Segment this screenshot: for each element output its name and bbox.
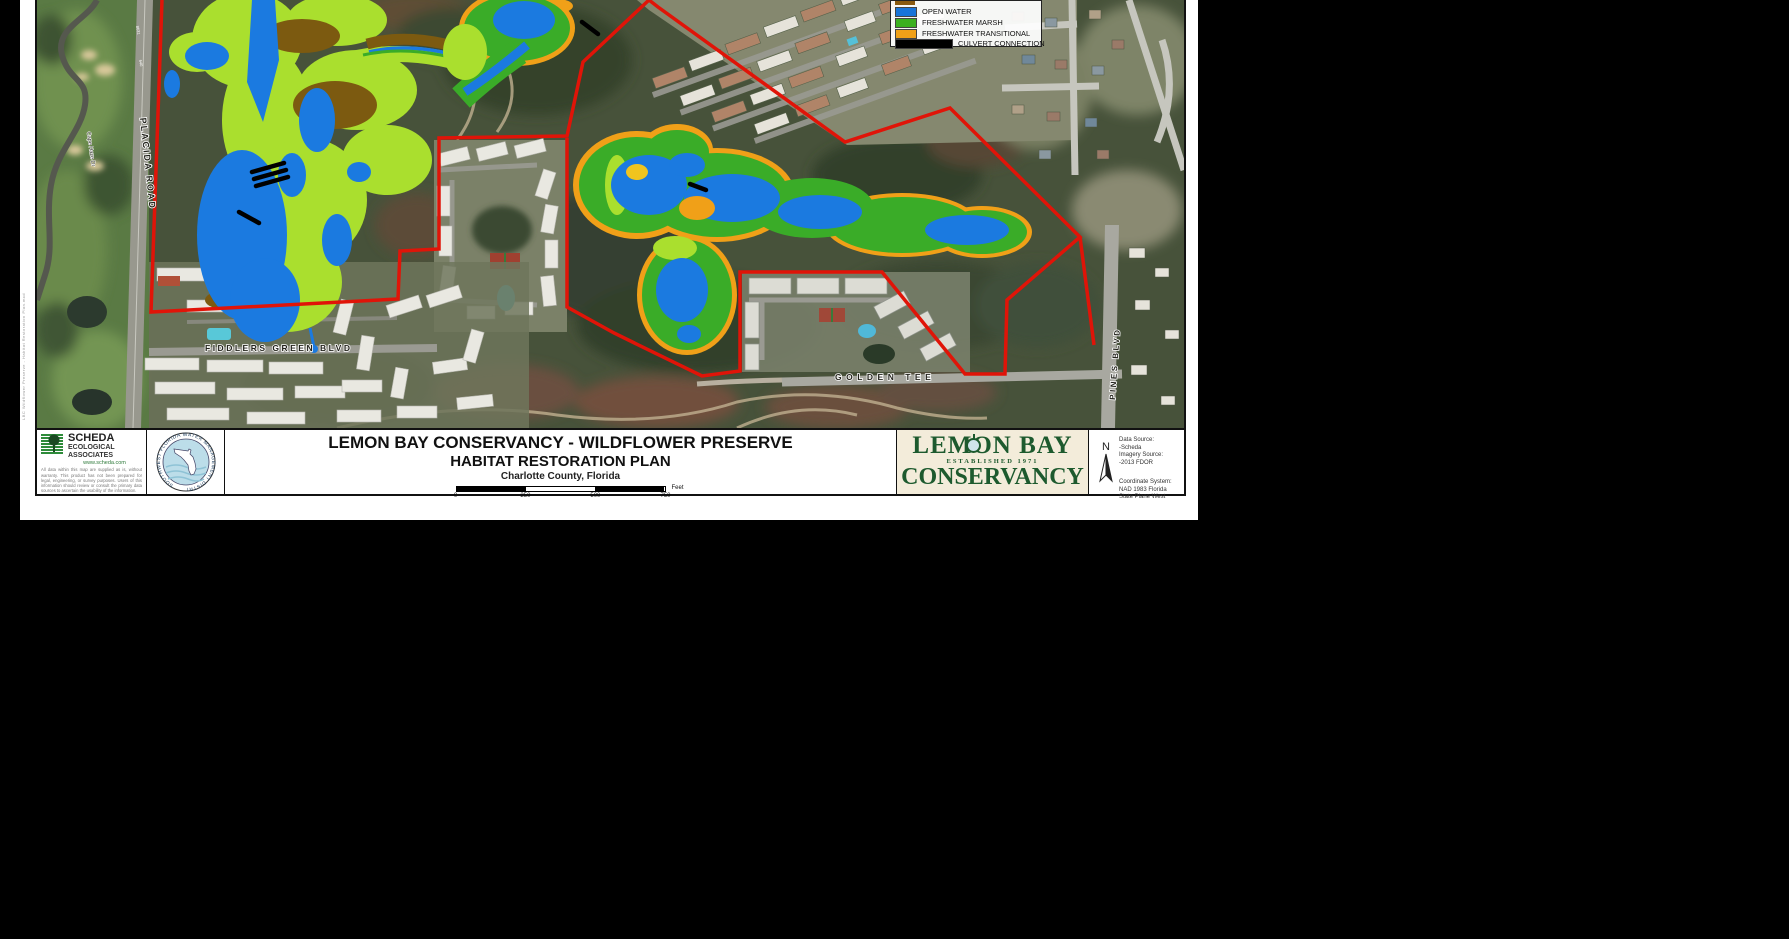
scale-unit: Feet: [671, 485, 683, 491]
lemon-bay-conservancy-logo: LEMON BAY ESTABLISHED 1971 CONSERVANCY: [897, 430, 1089, 494]
freshwater-transitional-swatch: [895, 29, 917, 39]
map-document-note: LBC Wildflower Preserve - Habitat Restor…: [21, 50, 33, 420]
map-image: PLACIDA ROAD FIDDLERS GREEN BLVD GOLDEN …: [37, 0, 1184, 428]
title-block: SCHEDA ECOLOGICAL ASSOCIATES www.scheda.…: [37, 428, 1184, 494]
lbc-logo-line3: CONSERVANCY: [901, 466, 1084, 489]
scheda-url: www.scheda.com: [67, 460, 142, 466]
legend-row-freshwater-transitional: FRESHWATER TRANSITIONAL: [895, 29, 1030, 38]
scheda-name: SCHEDA: [68, 433, 115, 444]
map-sheet: LBC Wildflower Preserve - Habitat Restor…: [20, 0, 1198, 520]
title-section: LEMON BAY CONSERVANCY - WILDFLOWER PRESE…: [225, 430, 897, 494]
source-line: NAD 1983 Florida: [1119, 487, 1181, 495]
legend-partial-swatch: [895, 1, 915, 5]
map-title-line3: Charlotte County, Florida: [225, 471, 896, 482]
scheda-line3: ASSOCIATES: [68, 452, 115, 460]
sanctuary-complex: [742, 272, 970, 372]
scheda-logo-icon: [41, 433, 65, 457]
legend-row-culvert-connection: CULVERT CONNECTION: [895, 39, 1045, 48]
open-water-swatch: [895, 7, 917, 17]
swfwmd-seal: SOUTHWEST FLORIDA WATER MANAGEMENT DISTR…: [154, 431, 218, 493]
map-title-line1: LEMON BAY CONSERVANCY - WILDFLOWER PRESE…: [225, 434, 896, 453]
legend: OPEN WATER FRESHWATER MARSH FRESHWATER T…: [890, 0, 1042, 47]
data-sources: Data Source: -Scheda Imagery Source: -20…: [1119, 433, 1181, 491]
scheda-line2: ECOLOGICAL: [68, 444, 115, 452]
north-label: N: [1102, 441, 1110, 453]
lbc-logo-line1: LEMON BAY: [912, 435, 1072, 458]
scale-tick: 750: [660, 493, 670, 499]
source-line: State Plane West: [1119, 494, 1181, 502]
legend-label: CULVERT CONNECTION: [958, 39, 1045, 48]
legend-label: FRESHWATER MARSH: [922, 18, 1003, 27]
marsh-south: [637, 235, 737, 355]
scale-tick: 0: [454, 493, 457, 499]
source-line: -Scheda: [1119, 445, 1181, 453]
golden-tee-label: GOLDEN TEE: [835, 372, 935, 382]
source-line: -2013 FDOR: [1119, 460, 1181, 468]
source-line: Data Source:: [1119, 437, 1181, 445]
legend-row-open-water: OPEN WATER: [895, 7, 972, 16]
seal-section: SOUTHWEST FLORIDA WATER MANAGEMENT DISTR…: [147, 430, 225, 494]
aerial-map: PLACIDA ROAD FIDDLERS GREEN BLVD GOLDEN …: [37, 0, 1184, 428]
legend-row-freshwater-marsh: FRESHWATER MARSH: [895, 18, 1003, 27]
north-arrow-icon: [1098, 453, 1114, 483]
map-frame: PLACIDA ROAD FIDDLERS GREEN BLVD GOLDEN …: [35, 0, 1186, 496]
freshwater-marsh-swatch: [895, 18, 917, 28]
source-line: Coordinate System:: [1119, 479, 1181, 487]
map-title-line2: HABITAT RESTORATION PLAN: [225, 453, 896, 470]
legend-label: FRESHWATER TRANSITIONAL: [922, 29, 1030, 38]
scheda-section: SCHEDA ECOLOGICAL ASSOCIATES www.scheda.…: [37, 430, 147, 494]
scale-tick: 250: [520, 493, 530, 499]
scale-tick: 500: [590, 493, 600, 499]
source-line: Imagery Source:: [1119, 452, 1181, 460]
fiddlers-green-label: FIDDLERS GREEN BLVD: [205, 343, 352, 353]
screen: LBC Wildflower Preserve - Habitat Restor…: [0, 0, 1789, 939]
tarpon-emblem-icon: [966, 438, 981, 453]
north-and-sources-section: N Data Source: -Scheda Imagery Source: -…: [1089, 430, 1184, 494]
scale-bar: Feet 0 250 500 750: [456, 486, 666, 500]
scheda-disclaimer: All data within this map are supplied as…: [41, 467, 142, 493]
culvert-connection-swatch: [895, 39, 953, 49]
legend-label: OPEN WATER: [922, 7, 972, 16]
